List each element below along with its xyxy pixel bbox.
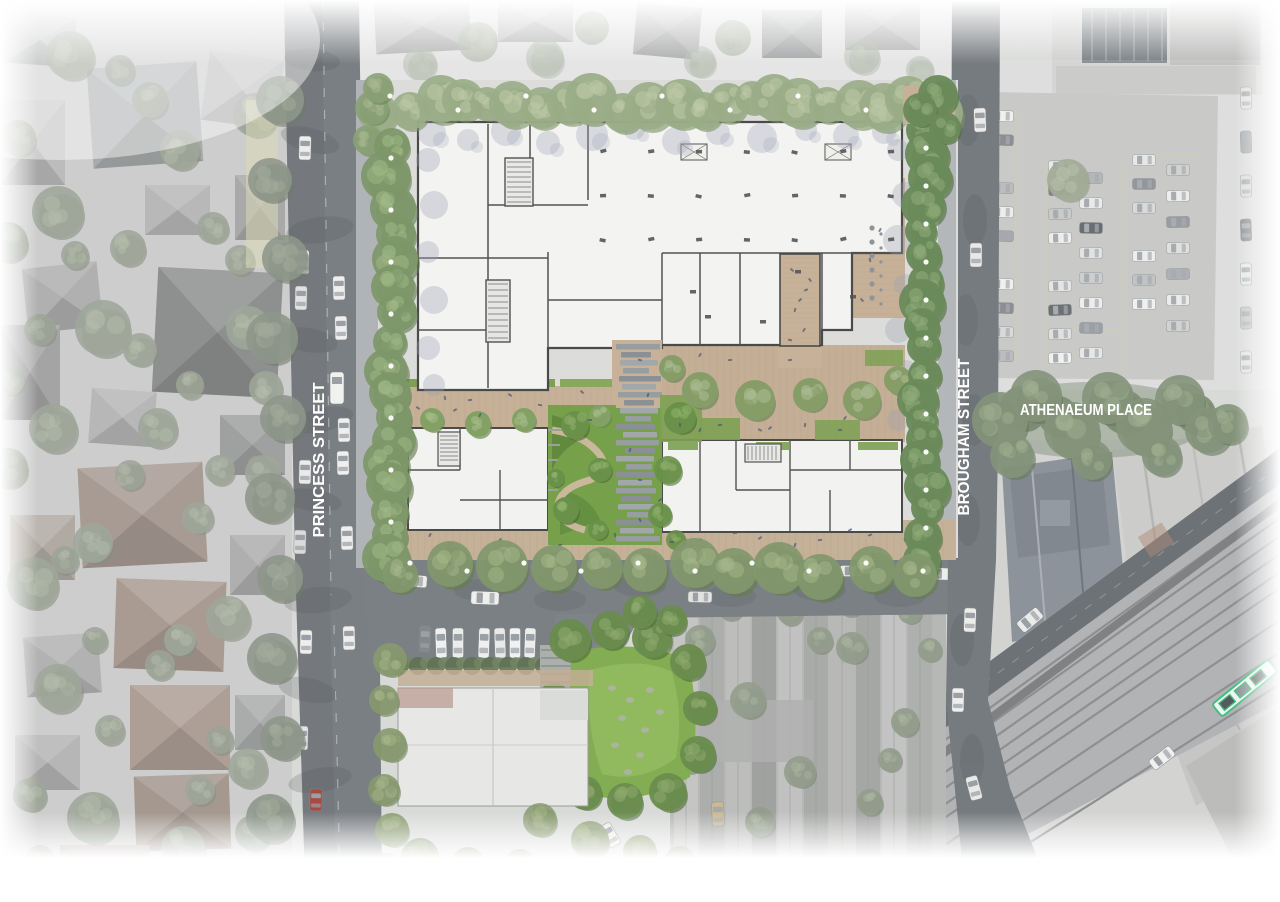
svg-text:ATHENAEUM PLACE: ATHENAEUM PLACE xyxy=(1020,402,1152,419)
svg-text:BROUGHAM STREET: BROUGHAM STREET xyxy=(956,358,973,515)
svg-text:PRINCESS STREET: PRINCESS STREET xyxy=(311,382,328,537)
